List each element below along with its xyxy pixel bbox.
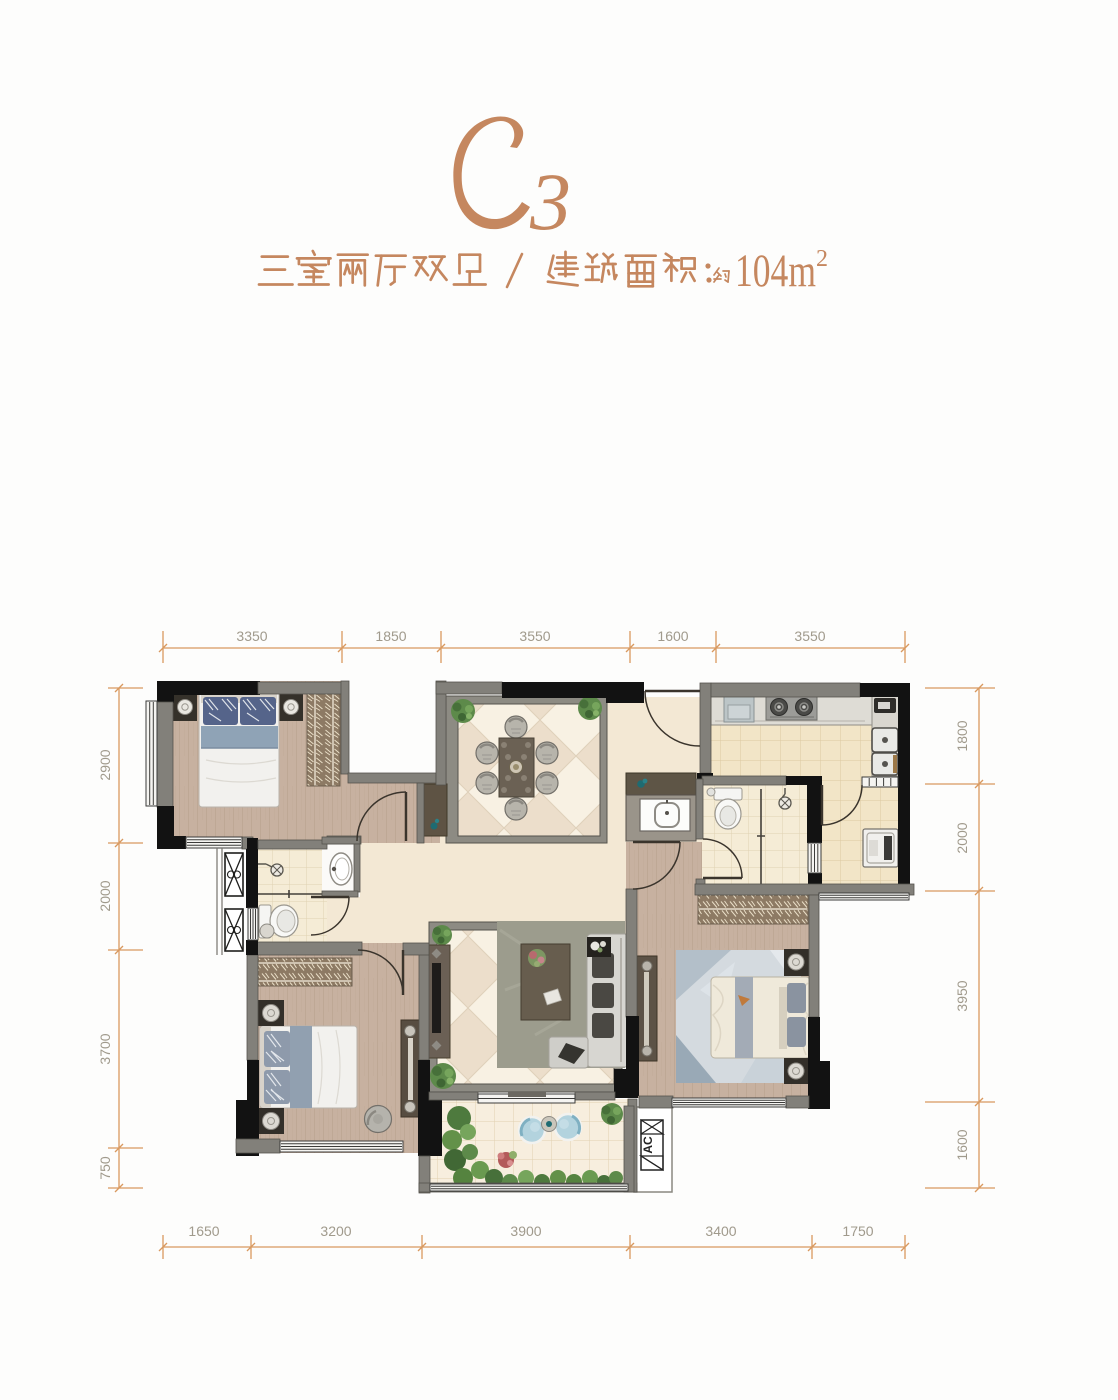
svg-text:2900: 2900 xyxy=(97,749,113,780)
svg-text:1600: 1600 xyxy=(954,1129,970,1160)
svg-text:3550: 3550 xyxy=(519,628,550,644)
svg-text:3950: 3950 xyxy=(954,980,970,1011)
svg-text:3700: 3700 xyxy=(97,1033,113,1064)
svg-text:1850: 1850 xyxy=(375,628,406,644)
svg-text:3400: 3400 xyxy=(705,1223,736,1239)
svg-text:2000: 2000 xyxy=(97,880,113,911)
svg-text:104m: 104m xyxy=(735,245,816,297)
svg-text:1650: 1650 xyxy=(188,1223,219,1239)
svg-text:750: 750 xyxy=(97,1156,113,1180)
svg-text:3900: 3900 xyxy=(510,1223,541,1239)
svg-text:1750: 1750 xyxy=(842,1223,873,1239)
svg-text:1800: 1800 xyxy=(954,720,970,751)
svg-text:3: 3 xyxy=(529,156,571,247)
svg-text:2000: 2000 xyxy=(954,822,970,853)
svg-text:2: 2 xyxy=(816,246,828,272)
svg-text:3200: 3200 xyxy=(320,1223,351,1239)
svg-text:1600: 1600 xyxy=(657,628,688,644)
svg-text:3550: 3550 xyxy=(794,628,825,644)
svg-text:AC: AC xyxy=(641,1136,655,1154)
svg-text:3350: 3350 xyxy=(236,628,267,644)
